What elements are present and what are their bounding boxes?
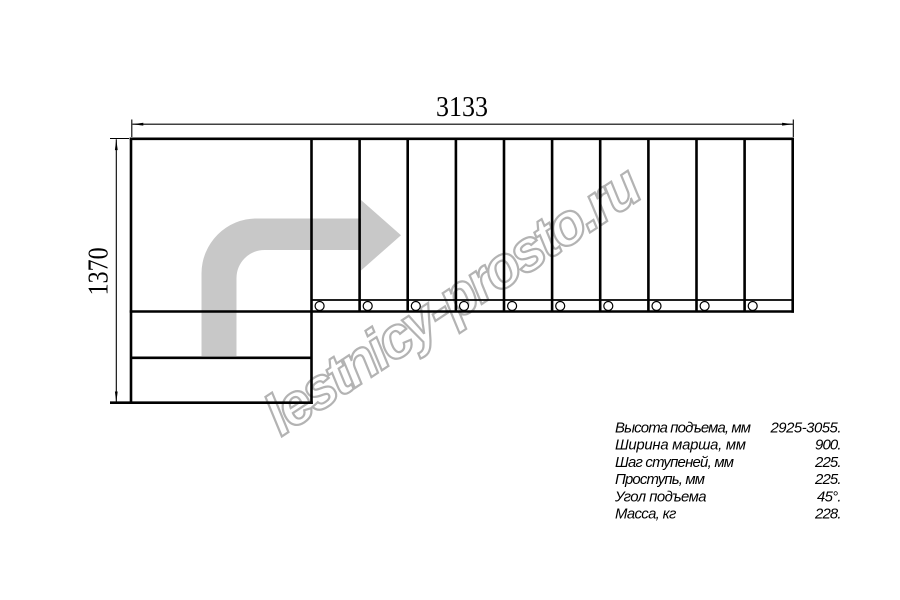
svg-text:Проступь, мм: Проступь, мм bbox=[615, 472, 705, 488]
svg-text:Масса, кг: Масса, кг bbox=[615, 507, 677, 523]
svg-text:228.: 228. bbox=[814, 507, 842, 523]
svg-text:225.: 225. bbox=[814, 472, 842, 488]
svg-text:45°.: 45°. bbox=[817, 489, 842, 505]
svg-text:Угол подъема: Угол подъема bbox=[614, 489, 707, 505]
svg-text:Ширина марша, мм: Ширина марша, мм bbox=[615, 438, 746, 454]
svg-text:Высота подъема, мм: Высота подъема, мм bbox=[615, 421, 751, 437]
svg-text:2925-3055.: 2925-3055. bbox=[770, 421, 842, 437]
svg-text:3133: 3133 bbox=[436, 92, 488, 123]
svg-text:1370: 1370 bbox=[84, 247, 115, 295]
svg-text:900.: 900. bbox=[815, 438, 842, 454]
svg-text:Шаг ступеней, мм: Шаг ступеней, мм bbox=[615, 455, 734, 471]
svg-text:225.: 225. bbox=[814, 455, 842, 471]
